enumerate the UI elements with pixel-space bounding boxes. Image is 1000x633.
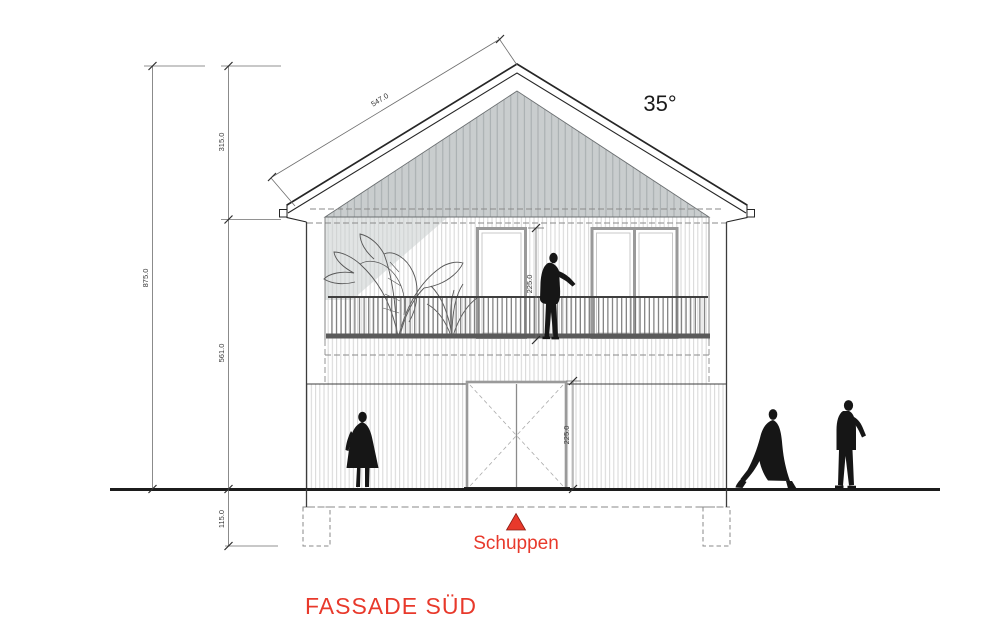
dim-label-wall-height: 561.0 [217,344,226,363]
right-fascia [727,204,748,222]
dimension-total-height: 875.0 [141,66,153,489]
shed-label: Schuppen [473,533,559,554]
shed-marker-triangle [507,514,526,531]
dim-label-roof-height: 315.0 [217,133,226,152]
drawing-title: FASSADE SÜD [305,593,477,619]
left-fascia [287,204,307,222]
footing-left [303,507,330,546]
dim-label-total-height: 875.0 [141,269,150,288]
elevation-drawing-page: 875.0 315.0 561.0 115.0 547.0 225.0 225.… [0,0,1000,633]
dim-label-shed-door: 225.0 [562,426,571,445]
dim-label-foundation-depth: 115.0 [217,510,226,528]
balcony-slab-edge [326,334,710,339]
balcony-railing [326,297,710,339]
footing-right [703,507,730,546]
fassade-sued-elevation: 875.0 315.0 561.0 115.0 547.0 225.0 225.… [0,0,1000,633]
person-walking [736,409,797,488]
shed-door [464,382,570,490]
person-standing-right [835,400,866,489]
left-gutter-end [280,210,288,218]
right-gutter-end [747,210,755,218]
dim-label-upper-door: 225.0 [525,275,534,294]
dim-label-roof-slope: 547.0 [369,91,390,108]
dimension-column-b: 315.0 561.0 115.0 [217,66,229,546]
roof-angle-label: 35° [643,91,676,116]
